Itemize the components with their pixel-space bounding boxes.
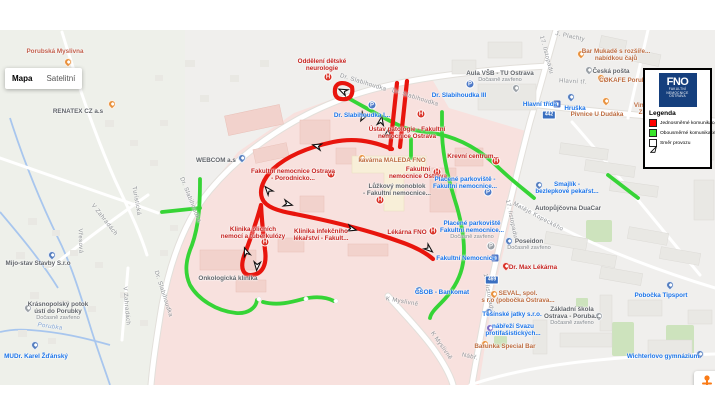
poi-label-line: Fakultní nemocnice... [433, 183, 497, 190]
poi-label-line: RENATEX CZ a.s [53, 108, 103, 115]
poi-label[interactable]: Placené parkoviště -Fakultní nemocnice..… [433, 176, 497, 190]
poi-label-line: Placené parkoviště [440, 220, 504, 227]
legend-item: Jednosměrné komunikace [645, 118, 710, 128]
poi-status-text: Dočasně zavřeno [544, 320, 600, 327]
direction-arrow-icon [649, 139, 657, 147]
traffic-direction-arrow [338, 86, 348, 95]
legend-item: Obousměrné komunikace [645, 128, 710, 138]
poi-label-line: Fakultní Nemocnice [436, 255, 496, 262]
pegman-icon [700, 375, 714, 385]
poi-label[interactable]: Dr. Slabihoudka I... [334, 112, 390, 119]
parking-marker-icon[interactable]: P [368, 101, 377, 110]
traffic-direction-arrow [283, 200, 293, 208]
traffic-direction-arrow [263, 184, 273, 195]
poi-status-text: Dočasně zavřeno [466, 77, 534, 84]
hospital-marker-icon[interactable]: H [429, 227, 438, 236]
poi-label-line: Autopůjčovna DuaCar [535, 205, 601, 212]
map-canvas[interactable]: Porubská MyslivnaRENATEX CZ a.sHOddělení… [0, 30, 715, 385]
poi-label-line: nemocnice Ostrava [369, 133, 446, 140]
poi-label-line: nábřeží Svazu [485, 323, 540, 330]
pegman-control[interactable] [694, 371, 715, 385]
route-path [430, 112, 464, 318]
traffic-direction-arrow [253, 262, 260, 271]
poi-label[interactable]: Hlavní třída [523, 101, 557, 108]
poi-label[interactable]: nábřeží Svazuprotifašistických... [485, 323, 540, 337]
legend-item-label: Obousměrné komunikace [660, 131, 715, 136]
fno-hospital-logo: FNO FAKULTNÍ NEMOCNICE OSTRAVA [659, 73, 697, 107]
poi-label[interactable]: Autopůjčovna DuaCar [535, 205, 601, 212]
legend-color-swatch [649, 129, 657, 137]
route-path [608, 175, 638, 198]
legend-item-label: Směr provozu [660, 141, 690, 146]
poi-label[interactable]: PoseidonDočasně zavřeno [507, 238, 551, 252]
poi-label-line: s r.o (pobočka Ostrava... [481, 297, 554, 304]
poi-label[interactable]: SEVAL, spol.s r.o (pobočka Ostrava... [481, 290, 554, 304]
legend-item: Směr provozu [645, 138, 710, 148]
route-endpoint [257, 297, 261, 301]
poi-label[interactable]: Těšínské jatky s.r.o. [482, 311, 542, 318]
street-label: Vřesová [77, 228, 84, 253]
poi-label-line: Aula VŠB - TU Ostrava [466, 70, 534, 77]
poi-label[interactable]: Klinika infekčníholékařství - Fakult... [294, 228, 349, 242]
poi-label-line: Ostrava - Poruba... [544, 313, 600, 320]
poi-label[interactable]: Klinika plicníchnemocí a tuberkulózy [221, 226, 285, 240]
poi-label-line: Klinika infekčního [294, 228, 349, 235]
road-number-shield: 442 [542, 111, 556, 120]
poi-label[interactable]: Barunka Special Bar [474, 343, 535, 350]
poi-label-line: Hlavní třída [523, 101, 557, 108]
poi-label-line: MUDr. Karel Žďánský [4, 353, 68, 360]
poi-label-line: Placené parkoviště - [433, 176, 497, 183]
poi-label[interactable]: Pivnice U Dudáka [571, 111, 624, 118]
poi-label-line: Fakultní [389, 166, 447, 173]
route-endpoint [334, 299, 338, 303]
poi-label-line: Fakultní nemocnice Ostrava [251, 168, 335, 175]
poi-label-line: Klinika plicních [221, 226, 285, 233]
fno-monogram: FNO [659, 73, 697, 88]
poi-label[interactable]: Krásnopolský potokústí do PorubkyDočasně… [28, 301, 89, 322]
poi-label[interactable]: RENATEX CZ a.s [53, 108, 103, 115]
poi-label-line: protifašistických... [485, 330, 540, 337]
poi-status-text: Dočasně zavřeno [440, 234, 504, 241]
route-endpoint [304, 297, 308, 301]
poi-label-line: Pobočka Tipsport [634, 292, 687, 299]
poi-label-line: ČSOB - Bankomat [415, 289, 469, 296]
legend-panel: FNO FAKULTNÍ NEMOCNICE OSTRAVA Legenda J… [643, 68, 712, 169]
poi-label-line: Barunka Special Bar [474, 343, 535, 350]
poi-label[interactable]: Základní školaOstrava - Poruba...Dočasně… [544, 306, 600, 327]
poi-label-line: Smajlík - [535, 181, 598, 188]
poi-label-line: Krevní centrum... [447, 153, 498, 160]
poi-label[interactable]: WEBCOM a.s [196, 157, 236, 164]
poi-label[interactable]: Onkologická klinika [198, 275, 257, 282]
legend-color-swatch [649, 119, 657, 127]
poi-label[interactable]: Fakultní Nemocnice [436, 255, 496, 262]
legend-title: Legenda [645, 109, 710, 118]
poi-label-line: Lůžkový monoblok [363, 183, 431, 190]
poi-label-line: Wichterlovo gymnázium [627, 353, 699, 360]
poi-label-line: neurologie [298, 65, 347, 72]
poi-status-text: Dočasně zavřeno [507, 245, 551, 252]
poi-label-line: Mijo-stav Stavby S.r.o [5, 260, 70, 267]
map-type-control: Mapa Satelitní [5, 68, 82, 89]
poi-label[interactable]: Aula VŠB - TU OstravaDočasně zavřeno [466, 70, 534, 84]
poi-label-line: Dr. Slabihoudka III [432, 92, 487, 99]
poi-label-line: Oddělení dětské [298, 58, 347, 65]
poi-label-line: bezlepkové pekařst... [535, 188, 598, 195]
poi-label-line: Dr. Slabihoudka I... [334, 112, 390, 119]
poi-label[interactable]: Mijo-stav Stavby S.r.o [5, 260, 70, 267]
poi-label-line: lékařství - Fakult... [294, 235, 349, 242]
poi-label-line: nemocí a tuberkulózy [221, 233, 285, 240]
poi-label-line: Lékárna FNO [387, 229, 426, 236]
legend-items: Jednosměrné komunikaceObousměrné komunik… [645, 118, 710, 148]
poi-label[interactable]: Fakultní nemocnice Ostrava- Porodnicko..… [251, 168, 335, 182]
poi-label-line: Fakultní nemocnice... [440, 227, 504, 234]
poi-label-line: - Fakultní nemocnice... [363, 190, 431, 197]
poi-label-line: ústí do Porubky [28, 308, 89, 315]
poi-label-line: Ústav patologie - Fakultní [369, 126, 446, 133]
poi-label[interactable]: Bar Mukadě s rozšíře...nabídkou čajů [582, 48, 651, 62]
parking-marker-icon[interactable]: P [487, 242, 496, 251]
poi-label-line: Porubská Myslivna [26, 48, 83, 55]
poi-label[interactable]: MUDr. Karel Žďánský [4, 353, 68, 360]
poi-label-line: nabídkou čajů [582, 55, 651, 62]
poi-status-text: Dočasně zavřeno [28, 315, 89, 322]
poi-label[interactable]: Porubská Myslivna [26, 48, 83, 55]
poi-label[interactable]: Lékárna FNO [387, 229, 426, 236]
poi-label[interactable]: Pobočka Tipsport [634, 292, 687, 299]
poi-label[interactable]: Smajlík -bezlepkové pekařst... [535, 181, 598, 195]
map-view-button[interactable]: Mapa [5, 68, 39, 89]
poi-label[interactable]: Lůžkový monoblok- Fakultní nemocnice... [363, 183, 431, 197]
poi-label-line: - Porodnicko... [251, 175, 335, 182]
road-number-shield: 469 [485, 276, 499, 285]
poi-label-line: Dr. Max Lékárna [509, 264, 557, 271]
poi-label[interactable]: Krevní centrum... [447, 153, 498, 160]
poi-label-line: SEVAL, spol. [481, 290, 554, 297]
poi-label[interactable]: Placené parkovištěFakultní nemocnice...D… [440, 220, 504, 241]
route-path [263, 297, 334, 303]
poi-label[interactable]: Wichterlovo gymnázium [627, 353, 699, 360]
poi-label-line: Těšínské jatky s.r.o. [482, 311, 542, 318]
poi-label-line: Krásnopolský potok [28, 301, 89, 308]
poi-label-line: Základní škola [544, 306, 600, 313]
poi-label-line: Poseidon [507, 238, 551, 245]
page: { "controls": {"map_label": "Mapa", "sat… [0, 0, 715, 402]
satellite-view-button[interactable]: Satelitní [39, 68, 82, 89]
fno-org-line: OSTRAVA [659, 95, 697, 99]
poi-label-line: kavárna MALEDA FNO [358, 157, 425, 164]
poi-label[interactable]: Oddělení dětskéneurologie [298, 58, 347, 72]
legend-item-label: Jednosměrné komunikace [660, 121, 715, 126]
hospital-marker-icon[interactable]: H [324, 73, 333, 82]
poi-label[interactable]: kavárna MALEDA FNO [358, 157, 425, 164]
poi-label[interactable]: Ústav patologie - Fakultnínemocnice Ostr… [369, 126, 446, 140]
poi-label-line: Bar Mukadě s rozšíře... [582, 48, 651, 55]
poi-label[interactable]: Dr. Slabihoudka III [432, 92, 487, 99]
poi-label-line: Onkologická klinika [198, 275, 257, 282]
poi-label-line: WEBCOM a.s [196, 157, 236, 164]
hospital-marker-icon[interactable]: H [417, 110, 426, 119]
poi-label[interactable]: Dr. Max Lékárna [509, 264, 557, 271]
poi-label[interactable]: ČSOB - Bankomat [415, 289, 469, 296]
poi-label-line: Pivnice U Dudáka [571, 111, 624, 118]
